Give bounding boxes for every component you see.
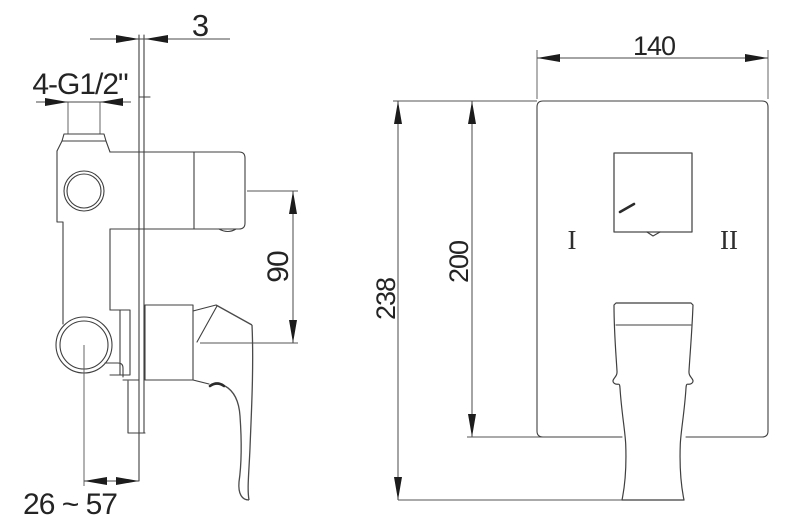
upper-port-outer-circle [64, 171, 104, 211]
spout-block-outline [110, 152, 245, 229]
wall-thickness-arrow-left [116, 35, 139, 43]
handle-flange [145, 305, 193, 380]
dim200-label: 200 [444, 241, 474, 283]
upper-port-inner-circle [67, 174, 101, 208]
wall-thickness-arrow-right [145, 35, 168, 43]
handle-cone-slant [216, 305, 252, 325]
width-dim-label: 140 [633, 31, 675, 61]
inlet-thread-label: 4-G1/2" [32, 68, 128, 101]
position-two-label: II [720, 225, 738, 255]
handle-lever-inner-edge [225, 386, 249, 500]
body-shoulder-right [106, 141, 110, 152]
depth-range-label: 26 ~ 57 [23, 488, 117, 521]
diverter-knob-square [614, 153, 692, 232]
front-view: 140 238 200 I II [371, 31, 768, 500]
handle-lever-outer-edge [248, 325, 253, 500]
body-left-edge [57, 151, 63, 324]
position-one-label: I [568, 225, 577, 255]
dim90-arrow-up [289, 191, 297, 214]
handle-step-rect [120, 310, 130, 375]
dim238-label: 238 [371, 278, 401, 320]
handle-lever-inner-start [193, 380, 209, 384]
side-view: 3 4-G1/2" 90 [23, 8, 298, 521]
handle-cone-top [193, 305, 216, 311]
wall-thickness-dim-label: 3 [192, 8, 208, 43]
dim238-arrow-up [394, 101, 402, 124]
handle-set-screw-detail [210, 384, 224, 387]
dim90-label: 90 [262, 251, 295, 283]
width-arrow-left [537, 54, 560, 62]
dim238-arrow-down [394, 477, 402, 500]
dim200-arrow-down [468, 414, 476, 437]
width-arrow-right [745, 54, 768, 62]
inlet-cap [62, 134, 106, 141]
waterfall-spout-outline [613, 303, 693, 500]
body-lower-edge [128, 381, 144, 433]
technical-drawing-canvas: 3 4-G1/2" 90 [0, 0, 788, 532]
depth-arrow-left [84, 477, 107, 485]
depth-arrow-right [116, 477, 139, 485]
handle-cone-inner-diagonal [197, 306, 217, 342]
body-shoulder-left [57, 141, 62, 151]
mixer-installation-drawing: 3 4-G1/2" 90 [0, 0, 788, 532]
dim200-arrow-up [468, 101, 476, 124]
dim90-arrow-down [289, 320, 297, 343]
diverter-knob-indicator [620, 204, 634, 212]
